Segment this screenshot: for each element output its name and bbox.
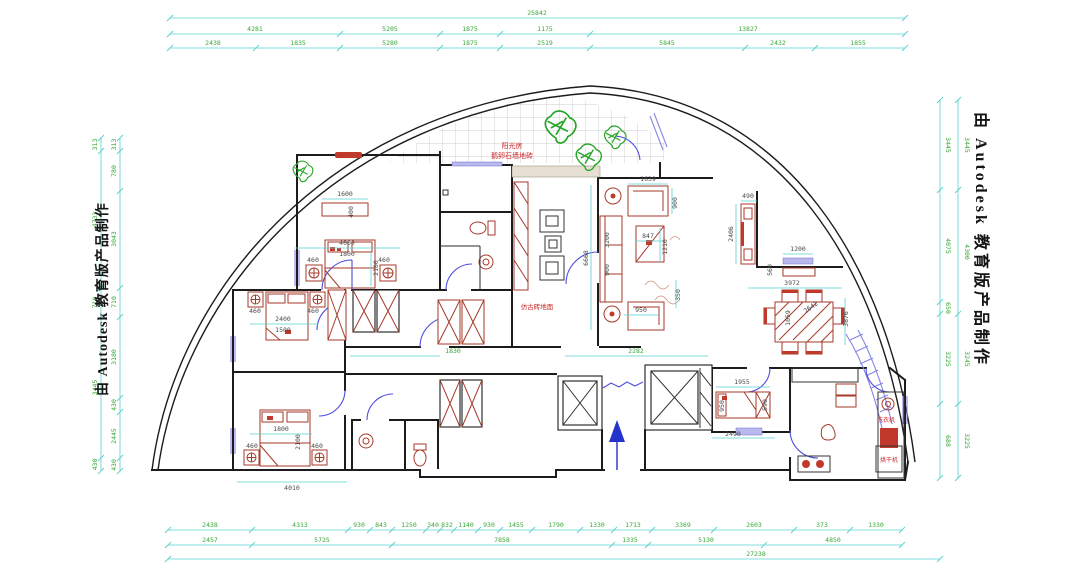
bath-window — [452, 162, 502, 166]
dim-label: 2603 — [746, 521, 762, 529]
dim-label: 650 — [944, 302, 952, 314]
dim-label: 460 — [311, 442, 323, 450]
watermark-right: 由 Autodesk 教育版产品制作 — [972, 112, 991, 367]
dim-label: 1335 — [622, 536, 638, 544]
dining-set — [764, 290, 844, 354]
dim-label: 1835 — [290, 39, 306, 47]
dim-label: 1790 — [548, 521, 564, 529]
dim-label: 2432 — [770, 39, 786, 47]
dim-label: 1713 — [625, 521, 641, 529]
bath1-fixtures — [440, 190, 495, 290]
study-shelf-column — [514, 182, 528, 290]
dim-label: 2438 — [205, 39, 221, 47]
stove — [798, 456, 830, 472]
dim-label: 2438 — [202, 521, 218, 529]
dim-label: 13827 — [738, 25, 758, 33]
dim-label: 843 — [375, 521, 387, 529]
dim-label: 950 — [635, 306, 647, 314]
tv-screen — [741, 222, 744, 246]
dim-label: 460 — [249, 307, 261, 315]
washing-machine — [880, 428, 898, 448]
dim-label: 4313 — [292, 521, 308, 529]
dim-label: 950 — [718, 400, 726, 412]
dim-label: 1330 — [589, 521, 605, 529]
dim-label: 3245 — [963, 351, 971, 367]
dim-label: 847 — [642, 232, 654, 240]
dim-label: 3225 — [963, 433, 971, 449]
dim-label: 4850 — [825, 536, 841, 544]
nightstand — [306, 265, 322, 281]
dim-label: 1200 — [790, 245, 806, 253]
dim-label: 900 — [671, 197, 679, 209]
dim-label: 3972 — [784, 279, 800, 287]
wardrobe-pair-1 — [353, 290, 399, 332]
sink — [479, 255, 493, 269]
dim-label: 1175 — [537, 25, 553, 33]
nightstand — [380, 265, 396, 281]
dim-label: 2282 — [628, 347, 644, 355]
study-table-group — [540, 210, 564, 280]
dim-label: 930 — [353, 521, 365, 529]
dim-label: 3225 — [944, 351, 952, 367]
wardrobe-brown — [328, 290, 346, 340]
doors — [317, 136, 890, 458]
dim-label: 1875 — [462, 25, 478, 33]
bedroom3-bed-group — [244, 410, 327, 466]
dim-label: 1059 — [784, 310, 792, 326]
dim-label: 430 — [110, 399, 118, 411]
bath2-fixtures — [359, 434, 426, 466]
dim-label: 5845 — [659, 39, 675, 47]
stone-wall-band — [512, 166, 600, 177]
dim-label: 350 — [674, 289, 682, 301]
dim-label: 25842 — [527, 9, 547, 17]
dim-label: 3200 — [603, 232, 611, 248]
dim-label: 313 — [91, 139, 99, 151]
dim-label: 2406 — [727, 226, 735, 242]
sink — [359, 434, 373, 448]
tv-unit — [335, 152, 362, 158]
kitchen-counter — [792, 368, 858, 382]
dim-label: 2445 — [110, 428, 118, 444]
dim-label: 490 — [742, 192, 754, 200]
dim-label: 4281 — [247, 25, 263, 33]
dim-label: 560 — [766, 264, 774, 276]
dim-label: 3043 — [110, 231, 118, 247]
dim-label: 3180 — [110, 349, 118, 365]
shaft-box-2 — [645, 365, 712, 430]
dim-label: 1140 — [458, 521, 474, 529]
dim-label: 2400 — [275, 315, 291, 323]
dim-label: 5280 — [382, 39, 398, 47]
sunroom-material-label: 鹅卵石墙地砖 — [491, 151, 533, 160]
watermark-left: 由 Autodesk 教育版产品制作 — [94, 202, 111, 396]
dim-label: 6668 — [582, 250, 590, 266]
nightstand — [312, 450, 327, 465]
toilet — [470, 221, 495, 235]
dim-label: 1800 — [339, 250, 355, 258]
dim-label: 1830 — [445, 347, 461, 355]
entry-folding-door — [603, 382, 643, 388]
dim-label: 1875 — [462, 39, 478, 47]
dim-label: 900 — [603, 264, 611, 276]
dim-label: 1455 — [508, 521, 524, 529]
dim-label: 1955 — [734, 378, 750, 386]
long-sofa — [600, 216, 622, 302]
dim-label: 4075 — [944, 238, 952, 254]
nightstand — [248, 292, 263, 307]
dim-label: 460 — [307, 307, 319, 315]
dim-label: 1250 — [401, 521, 417, 529]
dim-label: 3445 — [944, 137, 952, 153]
dim-label: 7858 — [494, 536, 510, 544]
dim-label: 930 — [483, 521, 495, 529]
dim-label: 460 — [378, 256, 390, 264]
dim-label: 2457 — [202, 536, 218, 544]
dim-label: 5130 — [698, 536, 714, 544]
wardrobe-pair-2 — [438, 300, 484, 344]
dim-label: 2519 — [537, 39, 553, 47]
nightstand — [310, 292, 325, 307]
dim-label: 3369 — [675, 521, 691, 529]
dim-label: 3876 — [842, 311, 850, 327]
entry-arrow — [609, 420, 625, 470]
dim-label: 5725 — [314, 536, 330, 544]
dim-label: 1800 — [273, 425, 289, 433]
dim-label: 1855 — [850, 39, 866, 47]
dryer-label: 烘干机 — [880, 456, 898, 464]
shaft-box-1 — [558, 376, 602, 430]
dim-label: 5205 — [382, 25, 398, 33]
floorplan-canvas: 25842 4281 5205 1875 1175 13827 2438 183… — [0, 0, 1074, 576]
tv-wall-group — [741, 204, 815, 276]
master-dresser — [322, 203, 368, 216]
dim-label: 1500 — [275, 326, 291, 334]
dim-label: 27238 — [746, 550, 766, 558]
dim-label: 1600 — [337, 190, 353, 198]
dim-label: 430 — [110, 459, 118, 471]
wardrobe-pair-3 — [440, 380, 482, 427]
dim-label: 4300 — [963, 244, 971, 260]
dim-label: 4010 — [284, 484, 300, 492]
washer-label: 洗衣机 — [877, 416, 895, 424]
dim-label: 688 — [944, 435, 952, 447]
dim-label: 2490 — [725, 430, 741, 438]
dim-label: 3445 — [963, 137, 971, 153]
dim-label: 710 — [110, 296, 118, 308]
dim-label: 400 — [347, 206, 355, 218]
dim-label: 590 — [761, 399, 769, 411]
dim-label: 460 — [246, 442, 258, 450]
dim-label: 313 — [110, 139, 118, 151]
sideboard — [783, 268, 815, 276]
dim-label: 780 — [110, 165, 118, 177]
shelf-1200 — [783, 258, 813, 264]
floor-material-label: 仿古砖地面 — [521, 302, 554, 311]
toilet — [414, 444, 426, 466]
dim-label: 340 — [427, 521, 439, 529]
dim-label: 373 — [816, 521, 828, 529]
floorplan-drawing: 25842 4281 5205 1875 1175 13827 2438 183… — [0, 0, 1074, 576]
dim-label: 2100 — [294, 434, 302, 450]
dim-label: 4000 — [339, 239, 355, 247]
dim-label: 460 — [307, 256, 319, 264]
dim-label: 832 — [441, 521, 453, 529]
sunroom-label: 阳光房 — [502, 141, 523, 150]
nightstand — [244, 450, 259, 465]
dim-label: 1639 — [640, 175, 656, 183]
dim-label: 1210 — [661, 239, 669, 255]
dim-label: 430 — [91, 459, 99, 471]
dim-label: 1330 — [868, 521, 884, 529]
water-heater — [821, 424, 835, 440]
